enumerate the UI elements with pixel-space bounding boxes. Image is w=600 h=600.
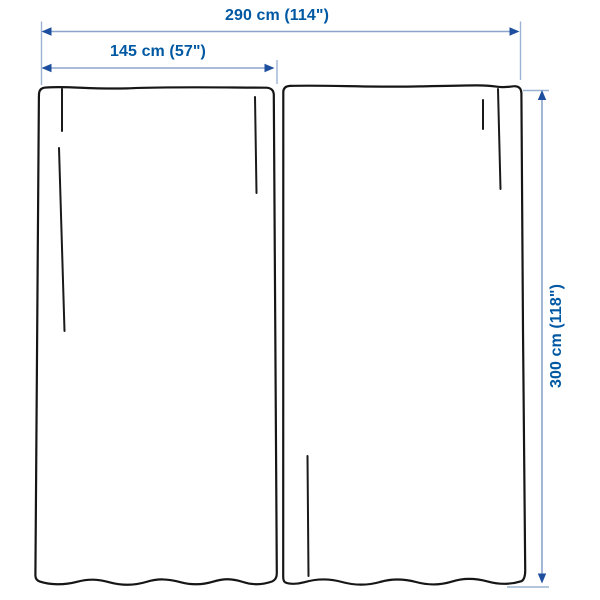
curtain-illustration [0, 0, 600, 600]
curtain-panel-right-outline [283, 85, 525, 584]
arrow-left-icon [42, 27, 52, 35]
total-width-label: 290 cm (114") [225, 7, 329, 25]
height-label: 300 cm (118") [548, 284, 566, 388]
arrow-up-icon [538, 90, 546, 100]
curtain-fold-line [308, 456, 309, 576]
arrow-right-icon [265, 64, 275, 72]
dimension-diagram: 290 cm (114") 145 cm (57") 300 cm (118") [0, 0, 600, 600]
arrow-left-icon [42, 64, 52, 72]
curtain-panel-left [35, 87, 276, 585]
curtain-panel-left-outline [35, 87, 276, 585]
arrow-down-icon [538, 574, 546, 584]
arrow-right-icon [510, 27, 520, 35]
panel-width-dimension [42, 60, 278, 84]
curtain-panel-right [283, 85, 525, 584]
panel-width-label: 145 cm (57") [110, 43, 206, 61]
